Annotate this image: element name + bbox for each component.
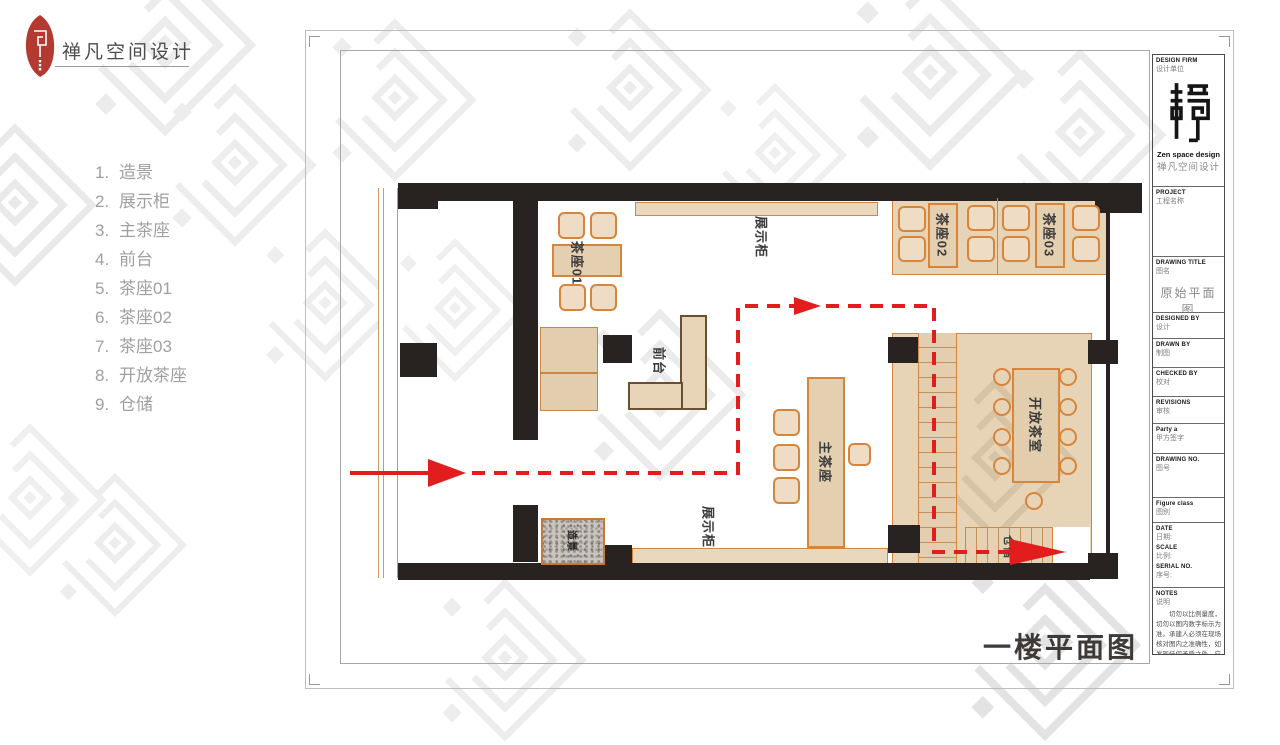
tb-notes: NOTES 说明 切勿以比例量度，切勿以图内数字标示为准。承建人必须在现场核对图…: [1153, 587, 1224, 654]
watermark-icon: [0, 420, 110, 580]
tb-checked-by: CHECKED BY 校对: [1153, 367, 1224, 396]
watermark-icon: [70, 0, 260, 140]
tb-revisions: REVISIONS 审核: [1153, 396, 1224, 423]
legend-list: 1.造景 2.展示柜 3.主茶座 4.前台 5.茶座01 6.茶座02 7.茶座…: [95, 158, 187, 419]
tb-drawing-title: DRAWING TITLE 图名 原始平面图: [1153, 256, 1224, 312]
legend-item: 2.展示柜: [95, 187, 187, 216]
legend-item: 1.造景: [95, 158, 187, 187]
zen-maze-logo-icon: [1167, 77, 1211, 145]
watermark-icon: [0, 120, 100, 290]
tb-date-scale-serial: DATE 日期: SCALE 比例: SERIAL NO. 序号:: [1153, 522, 1224, 587]
legend-item: 5.茶座01: [95, 274, 187, 303]
legend-item: 7.茶座03: [95, 332, 187, 361]
tb-party-a: Party a 甲方签字: [1153, 423, 1224, 453]
corner-tick: [309, 36, 320, 47]
corner-tick: [1219, 36, 1230, 47]
watermark-icon: [40, 470, 190, 620]
tb-drawing-no: DRAWING NO. 图号: [1153, 453, 1224, 497]
tb-project: PROJECT 工程名称: [1153, 186, 1224, 257]
notes-text: 切勿以比例量度，切勿以图内数字标示为准。承建人必须在现场核对图内之准确性，如发现…: [1156, 610, 1221, 654]
corner-tick: [1219, 674, 1230, 685]
tb-figure-class: Figure class 图别: [1153, 497, 1224, 523]
plan-caption: 一楼平面图: [983, 626, 1138, 666]
tb-drawn-by: DRAWN BY 制图: [1153, 338, 1224, 367]
legend-item: 8.开放茶座: [95, 361, 187, 390]
corner-tick: [309, 674, 320, 685]
red-leaf-logo-icon: [22, 13, 58, 79]
tb-design-firm: DESIGN FIRM 设计单位 Zen space de: [1153, 55, 1224, 186]
circulation-arrows-icon: [350, 175, 1150, 585]
legend-item: 3.主茶座: [95, 216, 187, 245]
drawing-title-value: 原始平面图: [1156, 284, 1221, 312]
header-brand: 禅凡空间设计: [62, 37, 194, 64]
legend-item: 4.前台: [95, 245, 187, 274]
header-underline: [55, 66, 189, 67]
floor-plan: 茶座01 前台 展示柜 主茶座 展示柜 造景 茶座02 茶座03 开放茶室 仓储: [350, 175, 1150, 585]
legend-item: 9.仓储: [95, 390, 187, 419]
legend-item: 6.茶座02: [95, 303, 187, 332]
title-block: DESIGN FIRM 设计单位 Zen space de: [1152, 54, 1225, 655]
tb-designed-by: DESIGNED BY 设计: [1153, 312, 1224, 338]
